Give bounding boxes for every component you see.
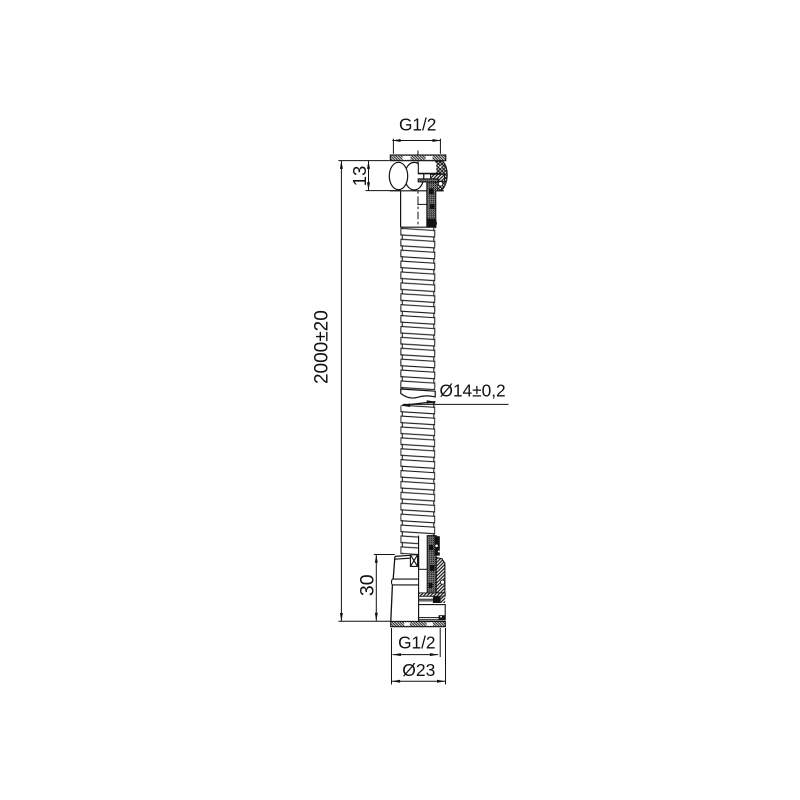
svg-text:2000±20: 2000±20 xyxy=(311,310,332,384)
svg-text:Ø14±0,2: Ø14±0,2 xyxy=(440,380,506,400)
svg-text:G1/2: G1/2 xyxy=(398,632,435,652)
svg-text:Ø23: Ø23 xyxy=(402,660,435,680)
svg-text:30: 30 xyxy=(357,574,379,596)
svg-text:G1/2: G1/2 xyxy=(399,115,436,135)
svg-text:13: 13 xyxy=(349,166,370,187)
